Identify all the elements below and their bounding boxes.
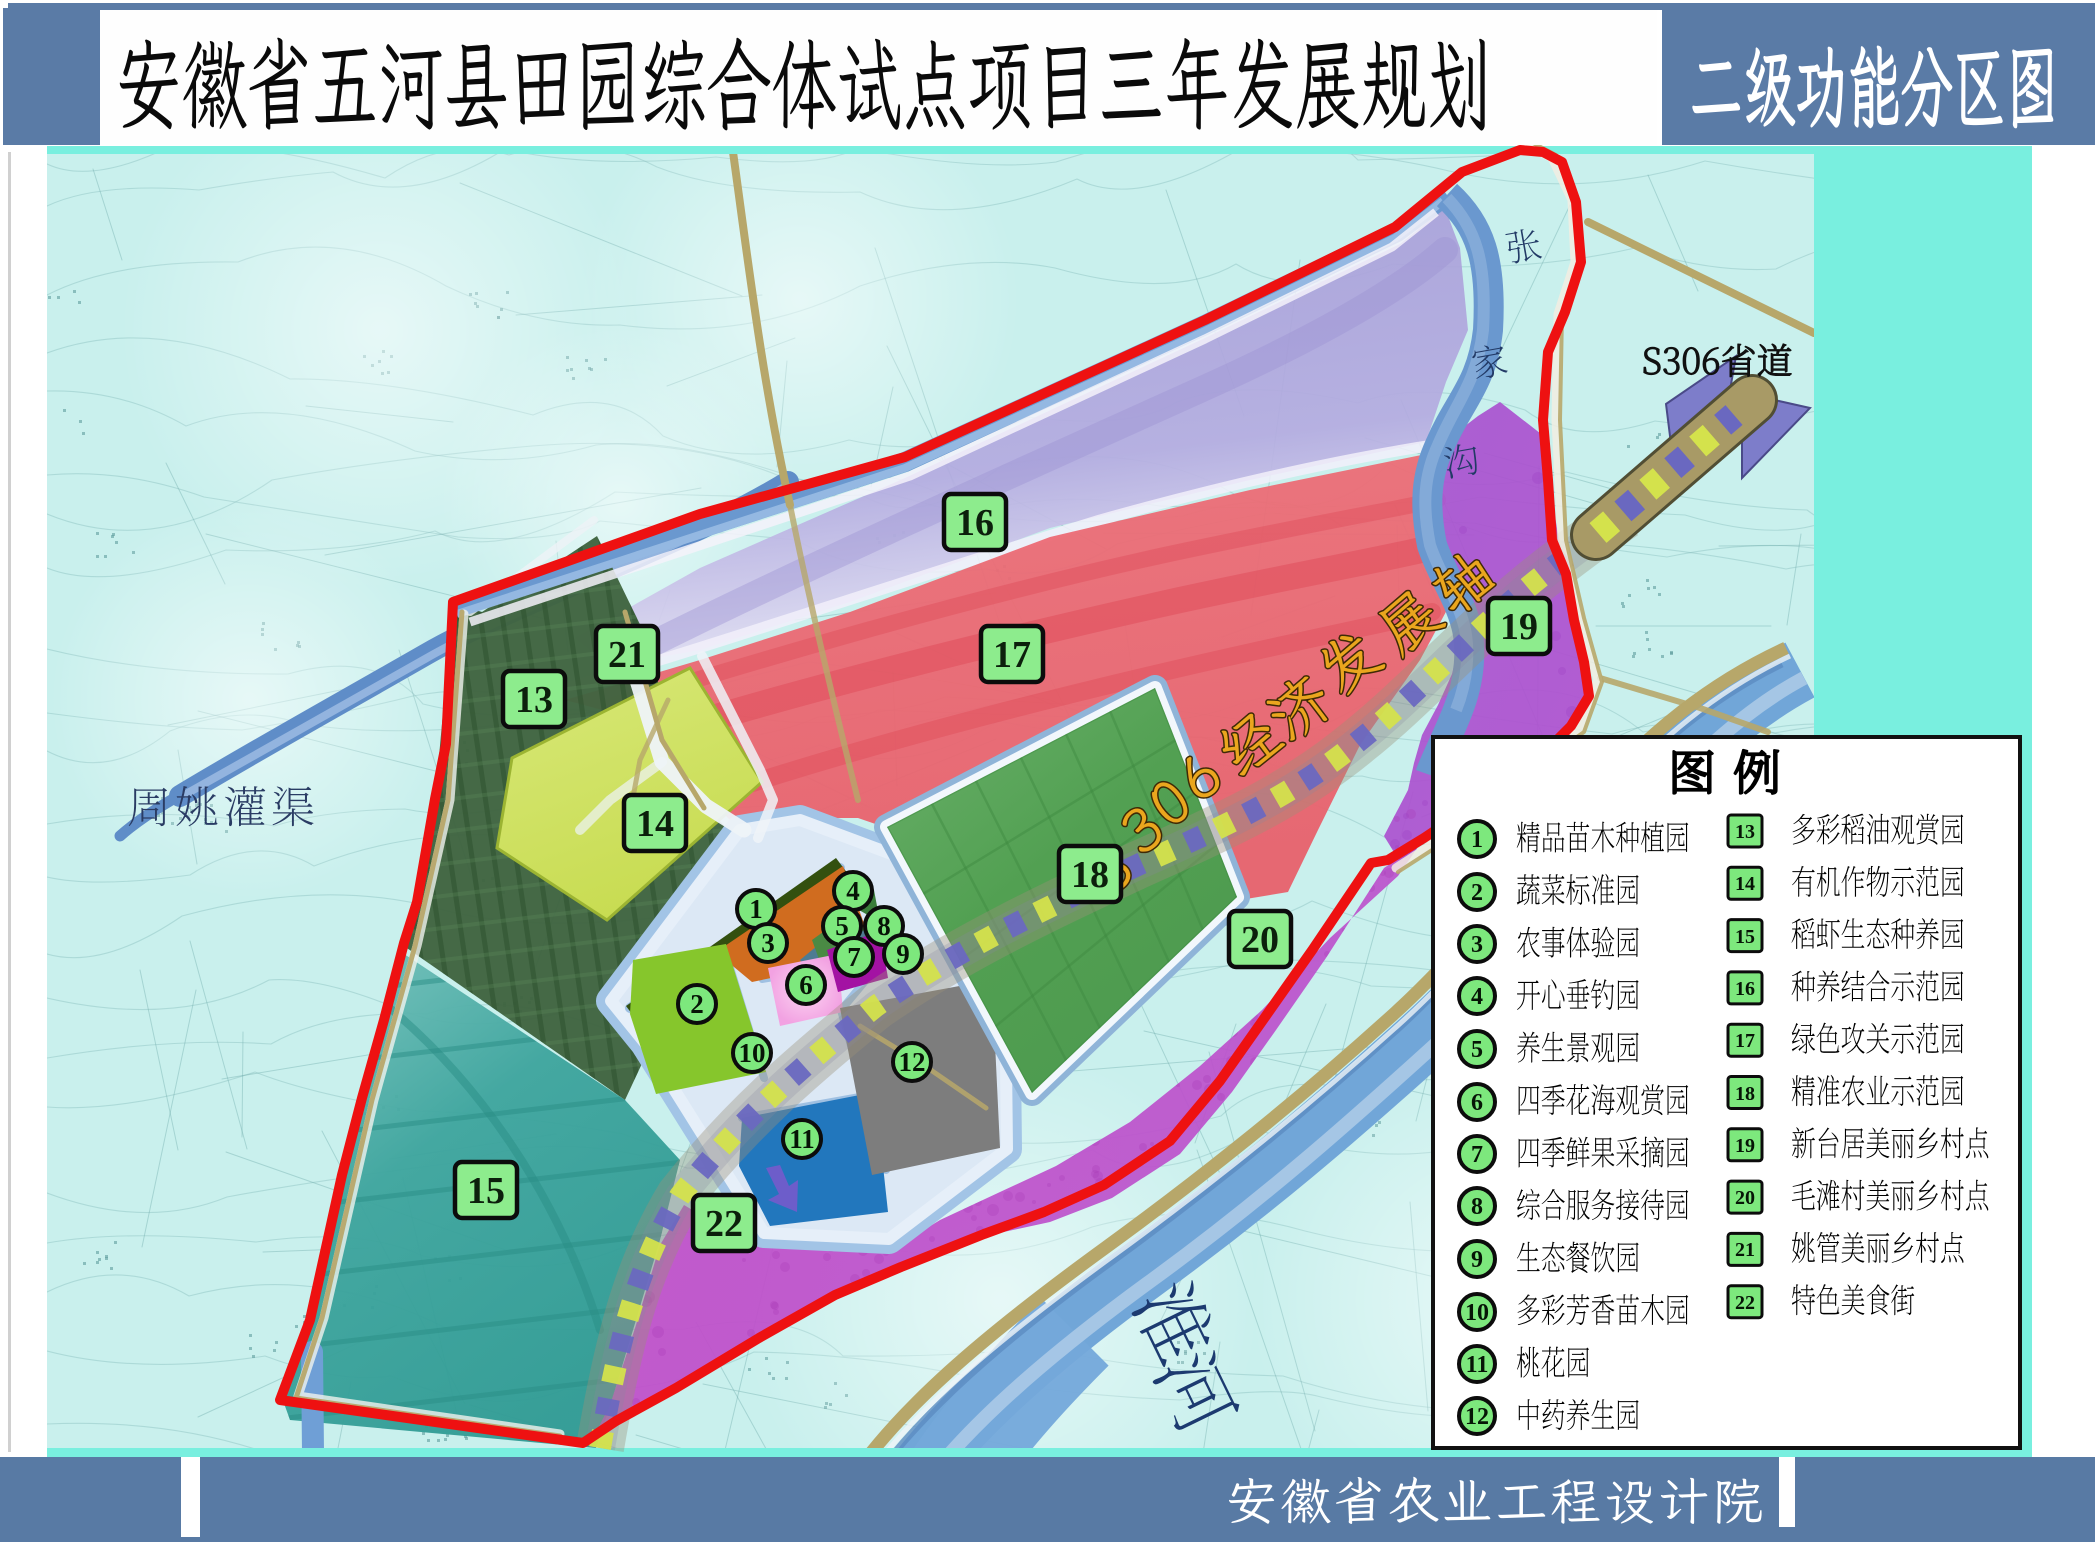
svg-text:6: 6 xyxy=(799,970,813,1000)
svg-text:17: 17 xyxy=(1735,1030,1755,1052)
svg-text:4: 4 xyxy=(1471,984,1483,1010)
svg-text:22: 22 xyxy=(1735,1292,1755,1314)
svg-text:1: 1 xyxy=(749,894,763,924)
svg-text:1: 1 xyxy=(1471,827,1483,853)
svg-text:10: 10 xyxy=(739,1038,766,1068)
svg-text:2: 2 xyxy=(690,989,704,1019)
svg-text:20: 20 xyxy=(1735,1187,1755,1209)
svg-text:13: 13 xyxy=(515,679,553,721)
svg-text:14: 14 xyxy=(1735,873,1755,895)
svg-text:15: 15 xyxy=(467,1170,505,1212)
svg-text:3: 3 xyxy=(1471,932,1483,958)
svg-text:18: 18 xyxy=(1735,1083,1755,1105)
svg-text:16: 16 xyxy=(956,502,994,544)
svg-text:2: 2 xyxy=(1471,880,1483,906)
svg-text:20: 20 xyxy=(1241,919,1279,961)
svg-text:6: 6 xyxy=(1471,1090,1483,1116)
svg-text:11: 11 xyxy=(1466,1352,1489,1378)
svg-text:19: 19 xyxy=(1500,606,1538,648)
svg-text:8: 8 xyxy=(877,911,891,941)
svg-text:22: 22 xyxy=(705,1203,743,1245)
svg-text:8: 8 xyxy=(1471,1194,1483,1220)
svg-text:7: 7 xyxy=(847,942,861,972)
svg-text:14: 14 xyxy=(636,803,674,845)
svg-text:17: 17 xyxy=(993,634,1031,676)
svg-text:5: 5 xyxy=(1471,1037,1483,1063)
svg-text:11: 11 xyxy=(789,1124,815,1154)
svg-text:21: 21 xyxy=(608,634,646,676)
svg-text:9: 9 xyxy=(896,939,910,969)
svg-text:10: 10 xyxy=(1465,1300,1489,1326)
svg-text:12: 12 xyxy=(1465,1404,1489,1430)
svg-text:18: 18 xyxy=(1071,854,1109,896)
svg-text:21: 21 xyxy=(1735,1239,1755,1261)
svg-text:15: 15 xyxy=(1735,926,1755,948)
svg-text:5: 5 xyxy=(835,911,849,941)
svg-text:19: 19 xyxy=(1735,1135,1755,1157)
svg-text:9: 9 xyxy=(1471,1247,1483,1273)
svg-text:13: 13 xyxy=(1735,821,1755,843)
svg-text:4: 4 xyxy=(846,876,860,906)
svg-text:16: 16 xyxy=(1735,978,1755,1000)
svg-text:3: 3 xyxy=(761,928,775,958)
svg-text:7: 7 xyxy=(1471,1142,1483,1168)
svg-text:12: 12 xyxy=(899,1047,926,1077)
